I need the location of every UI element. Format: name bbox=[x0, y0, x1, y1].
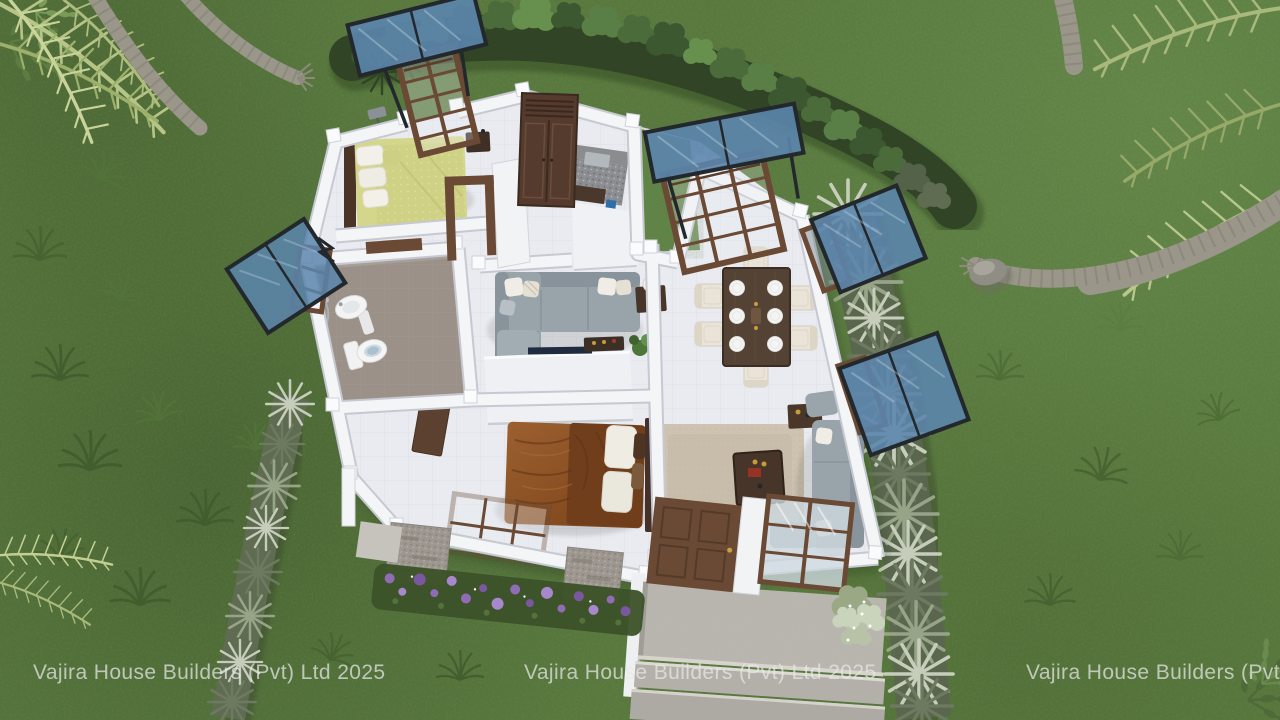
watermark-right: Vajira House Builders (Pvt) Ltd 2025 bbox=[1026, 660, 1280, 686]
watermark-left: Vajira House Builders (Pvt) Ltd 2025 bbox=[33, 660, 386, 686]
veranda-pillar bbox=[342, 468, 355, 526]
wardrobe bbox=[518, 93, 578, 207]
glass-door bbox=[760, 496, 853, 590]
centerpiece bbox=[751, 308, 761, 324]
watermark-center: Vajira House Builders (Pvt) Ltd 2025 bbox=[524, 660, 877, 686]
tv bbox=[528, 346, 592, 354]
scene bbox=[0, 0, 1280, 720]
kitchen-sink bbox=[583, 151, 611, 168]
dining-table bbox=[723, 268, 790, 366]
render-canvas: Vajira House Builders (Pvt) Ltd 2025 Vaj… bbox=[0, 0, 1280, 720]
entrance-door bbox=[648, 498, 740, 590]
kitchen-front-panel bbox=[572, 202, 638, 272]
headboard bbox=[344, 142, 356, 230]
